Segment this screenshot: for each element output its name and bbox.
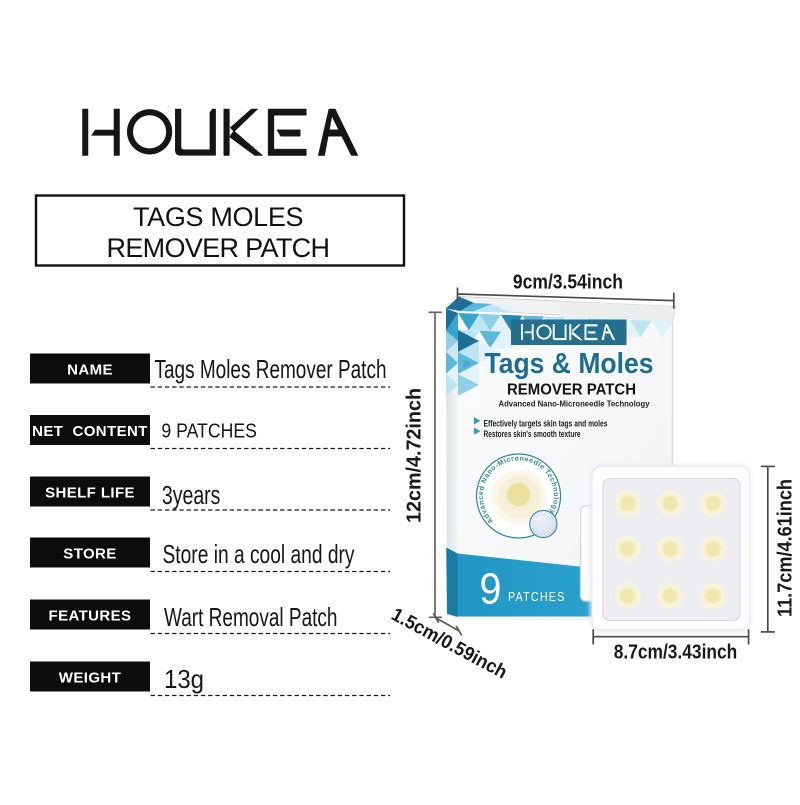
svg-text:REMOVER PATCH: REMOVER PATCH — [107, 233, 332, 263]
svg-text:NET CONTENT: NET CONTENT — [32, 423, 148, 440]
svg-text:9: 9 — [480, 565, 502, 614]
svg-text:Effectively targets skin tags: Effectively targets skin tags and moles — [484, 419, 608, 429]
svg-text:Tags & Moles: Tags & Moles — [485, 348, 654, 380]
svg-text:Advanced Nano-Microneedle Tech: Advanced Nano-Microneedle Technology — [499, 399, 650, 409]
svg-text:Restores skin's smooth texture: Restores skin's smooth texture — [484, 429, 581, 439]
svg-text:Wart Removal Patch: Wart Removal Patch — [164, 602, 338, 632]
svg-text:Tags Moles Remover Patch: Tags Moles Remover Patch — [155, 354, 387, 384]
svg-text:11.7cm/4.61inch: 11.7cm/4.61inch — [775, 479, 797, 617]
svg-text:3years: 3years — [162, 482, 221, 510]
svg-text:WEIGHT: WEIGHT — [59, 669, 121, 686]
svg-text:12cm/4.72inch: 12cm/4.72inch — [404, 388, 426, 523]
svg-text:Store in a cool and dry: Store in a cool and dry — [163, 539, 355, 569]
svg-text:FEATURES: FEATURES — [49, 607, 132, 624]
svg-text:STORE: STORE — [63, 545, 116, 562]
svg-text:8.7cm/3.43inch: 8.7cm/3.43inch — [614, 642, 738, 664]
svg-text:9cm/3.54inch: 9cm/3.54inch — [513, 271, 623, 293]
svg-text:9 PATCHES: 9 PATCHES — [161, 420, 257, 443]
svg-text:TAGS MOLES: TAGS MOLES — [133, 202, 305, 232]
svg-text:REMOVER PATCH: REMOVER PATCH — [507, 382, 636, 399]
svg-text:NAME: NAME — [67, 361, 113, 378]
svg-text:13g: 13g — [164, 664, 204, 694]
svg-text:PATCHES: PATCHES — [508, 590, 566, 604]
svg-text:SHELF LIFE: SHELF LIFE — [45, 484, 135, 501]
